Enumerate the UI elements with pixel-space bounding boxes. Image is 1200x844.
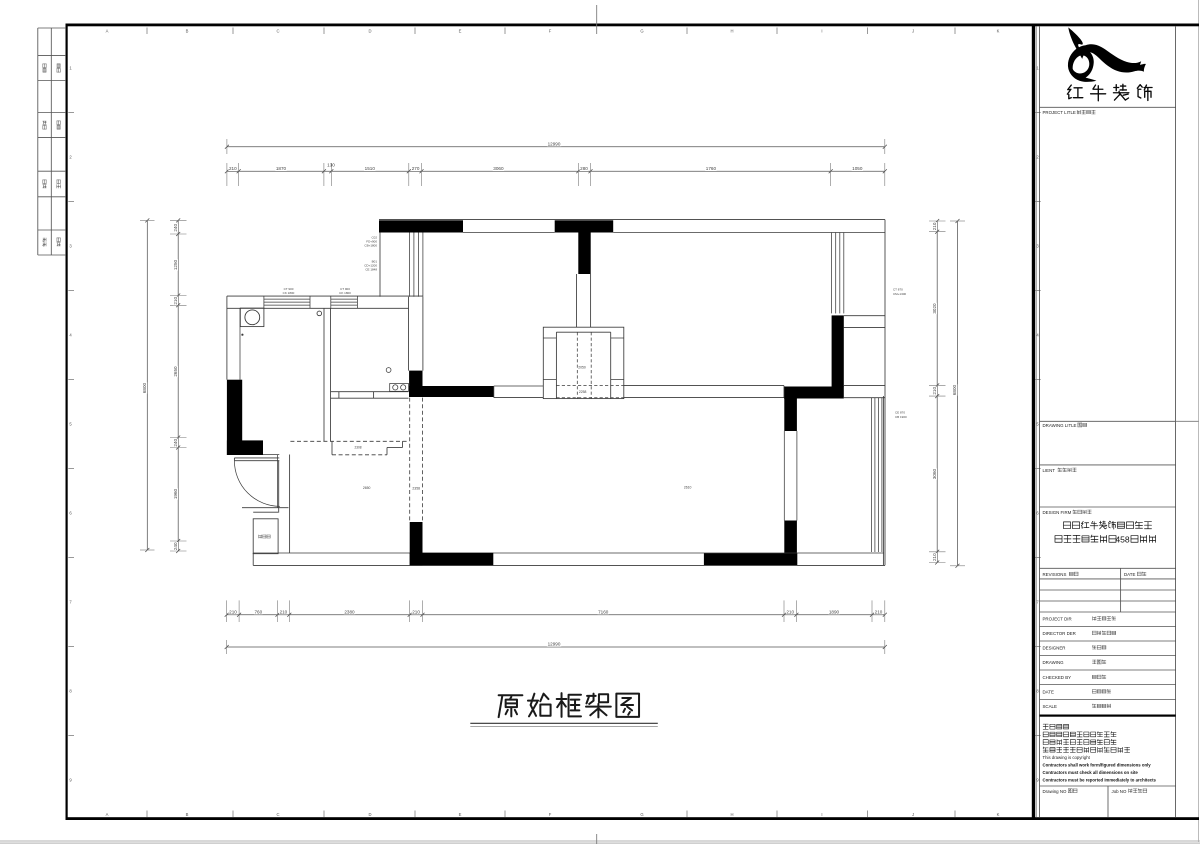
svg-text:D: D — [368, 29, 371, 34]
svg-text:CE 1848: CE 1848 — [365, 268, 377, 272]
svg-text:PROJECT LITLE: PROJECT LITLE — [1043, 110, 1076, 115]
svg-text:3060: 3060 — [493, 166, 504, 171]
svg-text:DATE: DATE — [1043, 690, 1054, 695]
svg-text:7160: 7160 — [598, 609, 609, 614]
svg-text:Contractors must check all dim: Contractors must check all dimensions on… — [1043, 770, 1139, 775]
svg-text:760: 760 — [254, 609, 262, 614]
svg-text:3060: 3060 — [932, 468, 937, 479]
svg-text:REVISIONS: REVISIONS — [1043, 572, 1067, 577]
svg-text:1890: 1890 — [829, 609, 840, 614]
svg-text:SCALE: SCALE — [1043, 704, 1057, 709]
svg-text:This drawing is copyright: This drawing is copyright — [1043, 755, 1091, 760]
svg-text:DESIGN FIRM: DESIGN FIRM — [1043, 510, 1072, 515]
svg-text:2358: 2358 — [412, 487, 420, 491]
svg-text:6800: 6800 — [142, 382, 147, 393]
svg-text:DIRECTOR DER: DIRECTOR DER — [1043, 631, 1076, 636]
svg-text:210: 210 — [875, 609, 883, 614]
svg-text:DATE: DATE — [1124, 572, 1135, 577]
svg-text:210: 210 — [932, 553, 937, 561]
svg-text:270: 270 — [412, 166, 420, 171]
svg-text:12990: 12990 — [548, 642, 561, 647]
svg-text:2050: 2050 — [578, 365, 586, 369]
svg-text:1760: 1760 — [706, 166, 717, 171]
svg-text:CB+1800: CB+1800 — [364, 244, 377, 248]
svg-text:1250: 1250 — [173, 259, 178, 270]
svg-text:210: 210 — [412, 609, 420, 614]
svg-text:G: G — [640, 812, 643, 817]
svg-text:DRAWING LITLE: DRAWING LITLE — [1043, 423, 1077, 428]
svg-text:210: 210 — [173, 297, 178, 305]
svg-text:F: F — [549, 29, 552, 34]
svg-text:DRAWING: DRAWING — [1043, 660, 1065, 665]
svg-text:1960: 1960 — [173, 488, 178, 499]
svg-text:CE 870: CE 870 — [895, 411, 905, 415]
svg-text:2610: 2610 — [684, 486, 692, 490]
svg-text:Contractors must be reported i: Contractors must be reported immediately… — [1043, 777, 1157, 782]
svg-text:1510: 1510 — [365, 166, 376, 171]
svg-text:458: 458 — [1115, 534, 1130, 544]
svg-text:E: E — [459, 29, 462, 34]
svg-text:A: A — [106, 812, 109, 817]
svg-text:J: J — [912, 29, 914, 34]
svg-text:CT 870: CT 870 — [893, 288, 903, 292]
svg-text:2258: 2258 — [579, 390, 587, 394]
svg-text:CHECKED BY: CHECKED BY — [1043, 675, 1072, 680]
svg-text:2380: 2380 — [344, 609, 355, 614]
svg-text:PROJECT DIR: PROJECT DIR — [1043, 617, 1072, 622]
svg-text:CB 1900: CB 1900 — [895, 415, 907, 419]
svg-text:K: K — [997, 812, 1000, 817]
svg-text:240: 240 — [173, 542, 178, 550]
svg-text:Drawing NO: Drawing NO — [1043, 789, 1067, 794]
svg-text:I: I — [821, 812, 822, 817]
svg-text:I: I — [821, 29, 822, 34]
svg-text:1870: 1870 — [276, 166, 287, 171]
svg-text:H: H — [730, 29, 733, 34]
svg-text:3020: 3020 — [932, 303, 937, 314]
svg-text:DESIGNER: DESIGNER — [1043, 646, 1066, 651]
svg-text:K: K — [997, 29, 1000, 34]
svg-text:CK 1800: CK 1800 — [283, 291, 295, 295]
svg-text:130: 130 — [327, 163, 335, 168]
svg-text:2650: 2650 — [173, 366, 178, 377]
svg-text:1050: 1050 — [852, 166, 863, 171]
svg-text:2308: 2308 — [354, 446, 361, 450]
svg-text:H: H — [730, 812, 733, 817]
svg-text:6800: 6800 — [952, 384, 957, 395]
svg-text:D: D — [368, 812, 371, 817]
svg-text:E: E — [459, 812, 462, 817]
svg-text:CM+1300: CM+1300 — [893, 292, 906, 296]
svg-text:2650: 2650 — [363, 486, 371, 490]
svg-text:240: 240 — [173, 224, 178, 232]
svg-text:210: 210 — [932, 222, 937, 230]
svg-text:210: 210 — [229, 609, 237, 614]
svg-text:240: 240 — [173, 439, 178, 447]
svg-text:210: 210 — [786, 609, 794, 614]
svg-text:J: J — [912, 812, 914, 817]
svg-text:210: 210 — [932, 387, 937, 395]
svg-text:B: B — [186, 29, 189, 34]
svg-text:12990: 12990 — [548, 141, 561, 146]
svg-text:LIENT: LIENT — [1043, 468, 1056, 473]
svg-text:F: F — [549, 812, 552, 817]
svg-text:Contractors shall work form/fi: Contractors shall work form/figured dime… — [1043, 762, 1152, 767]
svg-text:210: 210 — [280, 609, 288, 614]
svg-text:210: 210 — [229, 166, 237, 171]
svg-text:C: C — [276, 29, 279, 34]
svg-text:280: 280 — [580, 166, 588, 171]
svg-text:A: A — [106, 29, 109, 34]
svg-text:Job NO: Job NO — [1112, 789, 1127, 794]
svg-text:C: C — [276, 812, 279, 817]
svg-text:CK 1800: CK 1800 — [339, 291, 351, 295]
svg-text:B: B — [186, 812, 189, 817]
svg-text:G: G — [640, 29, 643, 34]
